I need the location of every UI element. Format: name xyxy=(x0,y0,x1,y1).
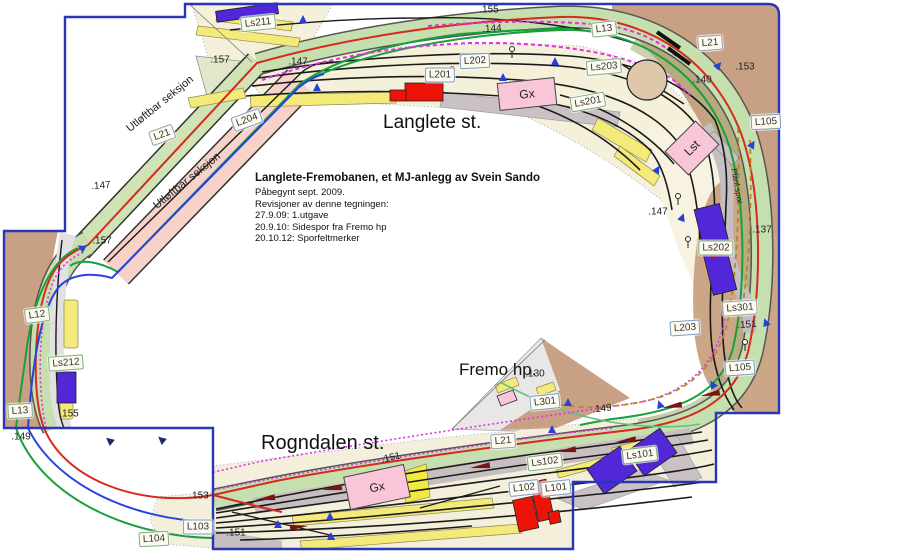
turntable xyxy=(627,60,667,100)
revision-line: 20.9.10: Sidespor fra Fremo hp xyxy=(255,222,540,234)
track-plan: Ls211L13L21L202Ls203L201Ls201L105L204L21… xyxy=(0,0,900,555)
revision-line: Revisjoner av denne tegningen: xyxy=(255,199,540,211)
plan-title: Langlete-Fremobanen, et MJ-anlegg av Sve… xyxy=(255,172,540,184)
revision-line: 20.10.12: Sporfeltmerker xyxy=(255,233,540,245)
info-block: Langlete-Fremobanen, et MJ-anlegg av Sve… xyxy=(255,172,540,245)
revision-lines: Påbegynt sept. 2009.Revisjoner av denne … xyxy=(255,187,540,245)
building-ls212 xyxy=(57,372,76,403)
revision-line: 27.9.09: 1.utgave xyxy=(255,210,540,222)
revision-line: Påbegynt sept. 2009. xyxy=(255,187,540,199)
track-plan-canvas xyxy=(0,0,900,555)
